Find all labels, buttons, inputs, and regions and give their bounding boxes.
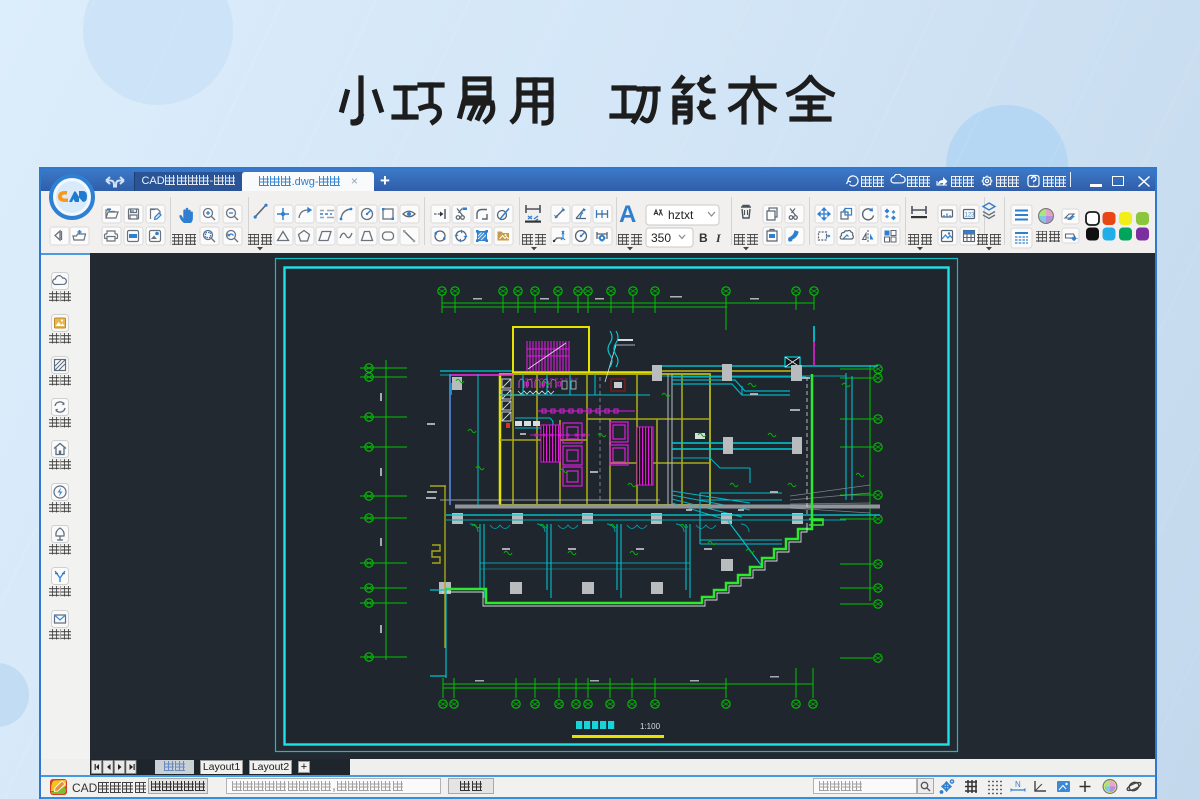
svg-text:123: 123	[965, 213, 976, 219]
svg-text:N: N	[1015, 780, 1021, 789]
svg-text:hztxt: hztxt	[668, 208, 694, 222]
svg-text:A: A	[619, 201, 636, 228]
svg-text:1:100: 1:100	[640, 722, 661, 731]
svg-text:B: B	[699, 231, 708, 245]
svg-text:I: I	[715, 231, 722, 245]
svg-text:350: 350	[651, 231, 671, 245]
